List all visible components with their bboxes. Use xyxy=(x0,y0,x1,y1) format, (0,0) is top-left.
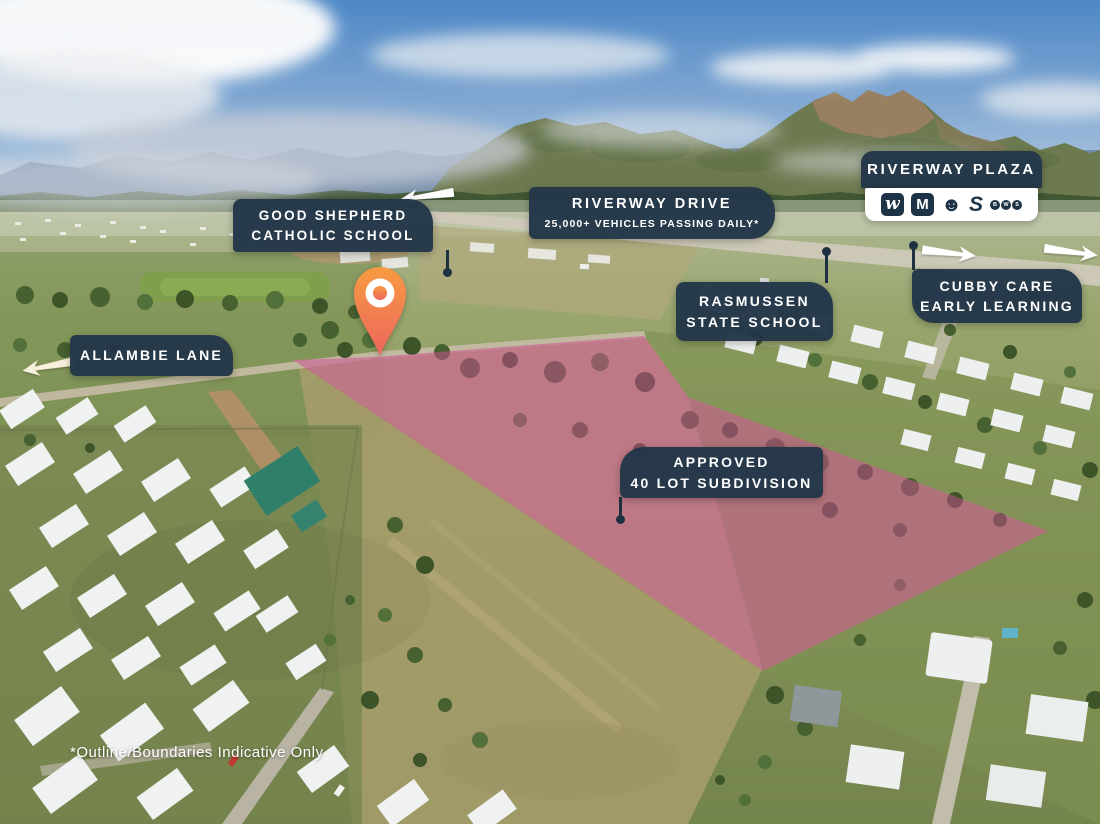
label-line: RIVERWAY DRIVE xyxy=(572,194,732,215)
label-good-shepherd-catholic-school: GOOD SHEPHERD CATHOLIC SCHOOL xyxy=(233,199,433,252)
leader-line xyxy=(912,248,915,270)
label-line: APPROVED xyxy=(673,452,769,472)
label-allambie-lane: ALLAMBIE LANE xyxy=(70,335,233,376)
label-line: RASMUSSEN xyxy=(699,291,810,311)
subway-logo-icon: S xyxy=(969,194,983,215)
aerial-terrain xyxy=(0,0,1100,824)
label-riverway-plaza: RIVERWAY PLAZA xyxy=(861,151,1042,188)
leader-dot xyxy=(616,515,625,524)
label-riverway-drive: RIVERWAY DRIVE 25,000+ VEHICLES PASSING … xyxy=(529,187,775,239)
label-approved-40-lot-subdivision: APPROVED 40 LOT SUBDIVISION xyxy=(620,447,823,498)
leader-line xyxy=(619,497,622,517)
boundaries-disclaimer: *Outline/Boundaries Indicative Only xyxy=(70,744,323,761)
mcdonalds-logo-icon: M xyxy=(911,193,934,216)
label-line: RIVERWAY PLAZA xyxy=(867,159,1036,181)
label-line: EARLY LEARNING xyxy=(920,296,1074,316)
leader-dot xyxy=(909,241,918,250)
label-line: GOOD SHEPHERD xyxy=(259,206,408,226)
kfc-logo-icon: ☻ xyxy=(941,195,962,215)
map-pin-icon xyxy=(349,260,411,360)
label-line: 25,000+ VEHICLES PASSING DAILY* xyxy=(545,217,760,232)
label-line: CUBBY CARE xyxy=(939,276,1054,296)
label-line: ALLAMBIE LANE xyxy=(80,345,223,365)
label-line: CATHOLIC SCHOOL xyxy=(251,226,414,246)
label-rasmussen-state-school: RASMUSSEN STATE SCHOOL xyxy=(676,282,833,341)
label-line: 40 LOT SUBDIVISION xyxy=(631,473,813,493)
woolworths-logo-icon: w xyxy=(881,193,904,216)
label-cubby-care-early-learning: CUBBY CARE EARLY LEARNING xyxy=(912,269,1082,323)
aerial-site-map: GOOD SHEPHERD CATHOLIC SCHOOL RIVERWAY D… xyxy=(0,0,1100,824)
leader-line xyxy=(825,254,828,283)
label-line: STATE SCHOOL xyxy=(686,312,822,332)
bws-logo-icon: BWS xyxy=(990,200,1022,210)
plaza-tenant-logos: w M ☻ S BWS xyxy=(865,188,1038,221)
leader-dot xyxy=(822,247,831,256)
leader-dot xyxy=(443,268,452,277)
